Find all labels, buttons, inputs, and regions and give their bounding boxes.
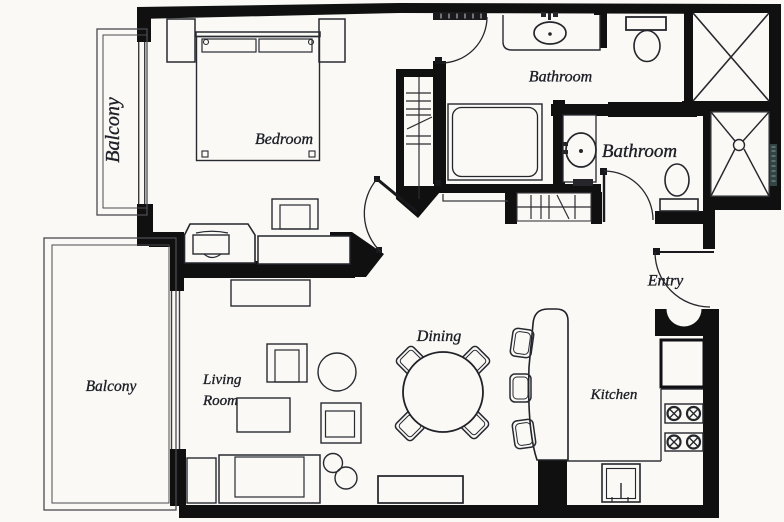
svg-text:Bathroom: Bathroom xyxy=(529,69,592,86)
svg-text:Entry: Entry xyxy=(647,273,684,290)
svg-text:Bedroom: Bedroom xyxy=(255,131,313,148)
svg-text:Bathroom: Bathroom xyxy=(602,141,677,162)
svg-text:Balcony: Balcony xyxy=(86,378,137,395)
svg-text:Kitchen: Kitchen xyxy=(590,387,638,403)
svg-text:Dining: Dining xyxy=(416,328,461,345)
svg-text:Balcony: Balcony xyxy=(102,97,124,163)
svg-text:Living: Living xyxy=(202,372,242,388)
svg-text:Room: Room xyxy=(202,393,238,409)
